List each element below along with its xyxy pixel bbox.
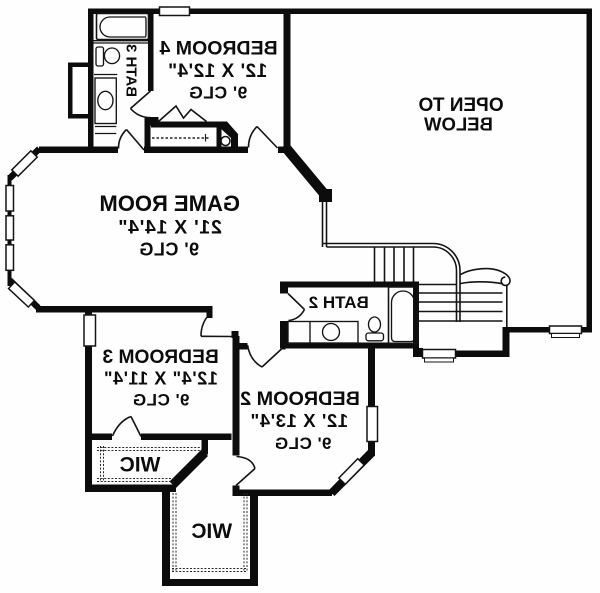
svg-text:BEDROOM 4: BEDROOM 4 <box>159 38 277 60</box>
svg-text:9' CLG: 9' CLG <box>189 83 248 103</box>
svg-text:WIC: WIC <box>191 520 232 543</box>
svg-text:BEDROOM 2: BEDROOM 2 <box>240 388 360 410</box>
svg-text:WIC: WIC <box>120 453 161 476</box>
svg-text:12' X 12'4": 12' X 12'4" <box>168 61 268 82</box>
svg-text:BELOW: BELOW <box>424 113 493 134</box>
svg-text:12' X 13'4": 12' X 13'4" <box>250 410 348 431</box>
svg-text:12'4" X 11'4": 12'4" X 11'4" <box>103 369 218 389</box>
svg-text:9' CLG: 9' CLG <box>139 240 199 260</box>
svg-text:9' CLG: 9' CLG <box>274 434 331 453</box>
svg-text:BATH 2: BATH 2 <box>309 293 369 312</box>
svg-text:GAME ROOM: GAME ROOM <box>99 191 240 216</box>
svg-text:BEDROOM 3: BEDROOM 3 <box>102 347 218 368</box>
svg-text:21' X 14'4": 21' X 14'4" <box>118 217 222 239</box>
svg-text:9' CLG: 9' CLG <box>132 390 189 409</box>
svg-text:BATH 3: BATH 3 <box>123 44 140 97</box>
